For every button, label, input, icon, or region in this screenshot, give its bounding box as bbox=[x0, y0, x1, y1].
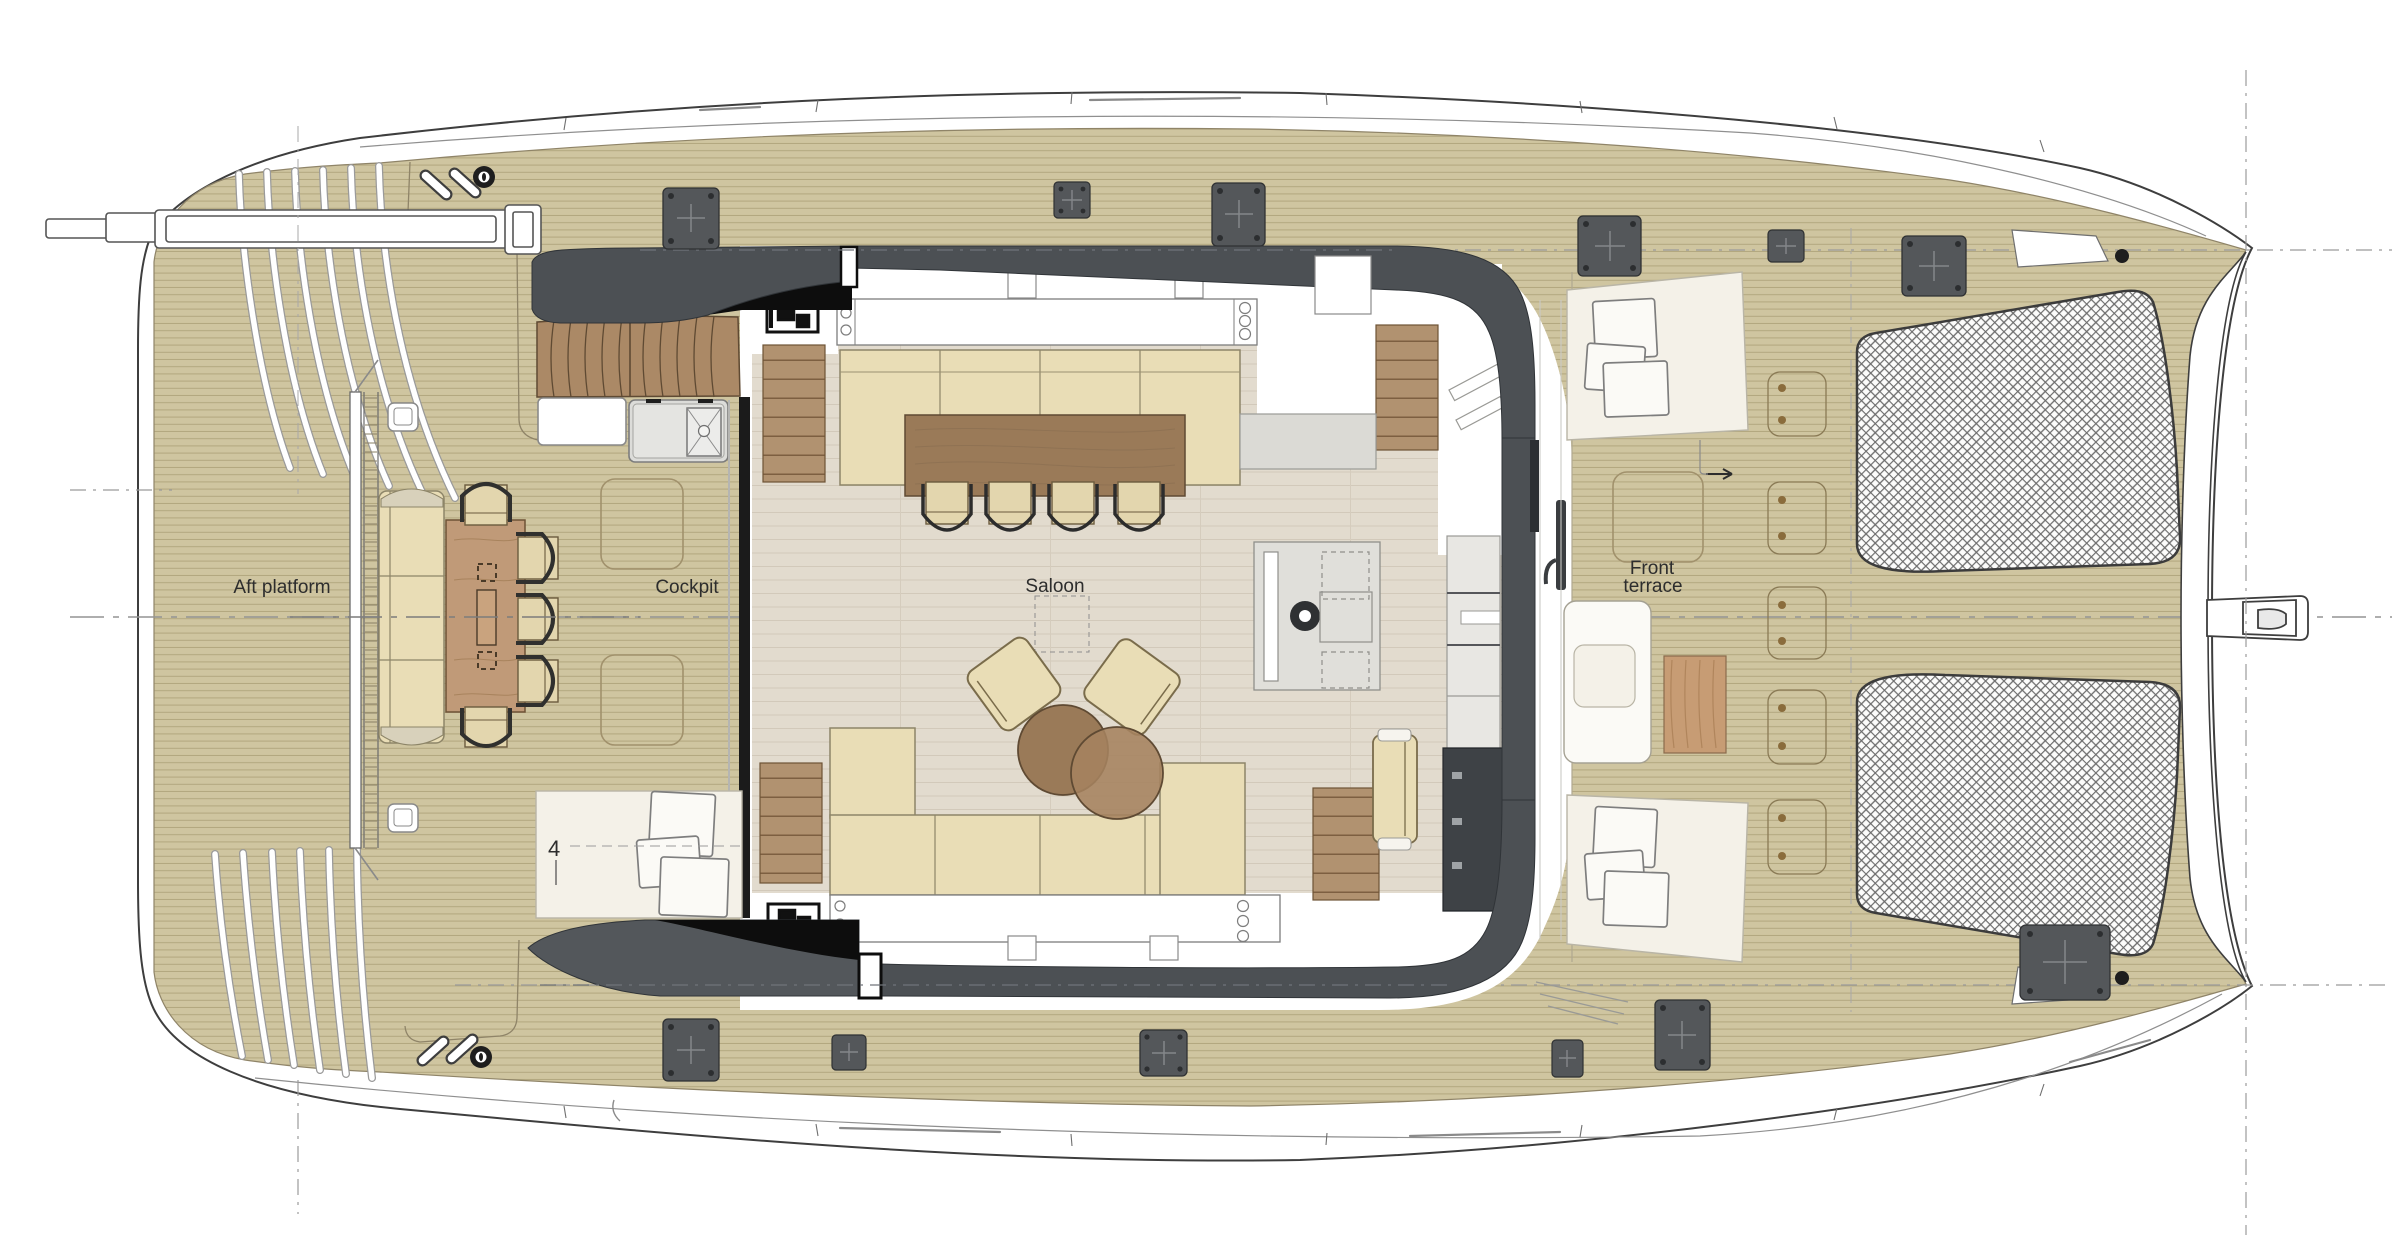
svg-text:Cockpit: Cockpit bbox=[655, 577, 719, 598]
svg-text:Saloon: Saloon bbox=[1025, 576, 1084, 597]
svg-text:Aft platform: Aft platform bbox=[233, 577, 330, 598]
svg-text:4: 4 bbox=[548, 836, 560, 861]
svg-text:terrace: terrace bbox=[1623, 576, 1682, 597]
